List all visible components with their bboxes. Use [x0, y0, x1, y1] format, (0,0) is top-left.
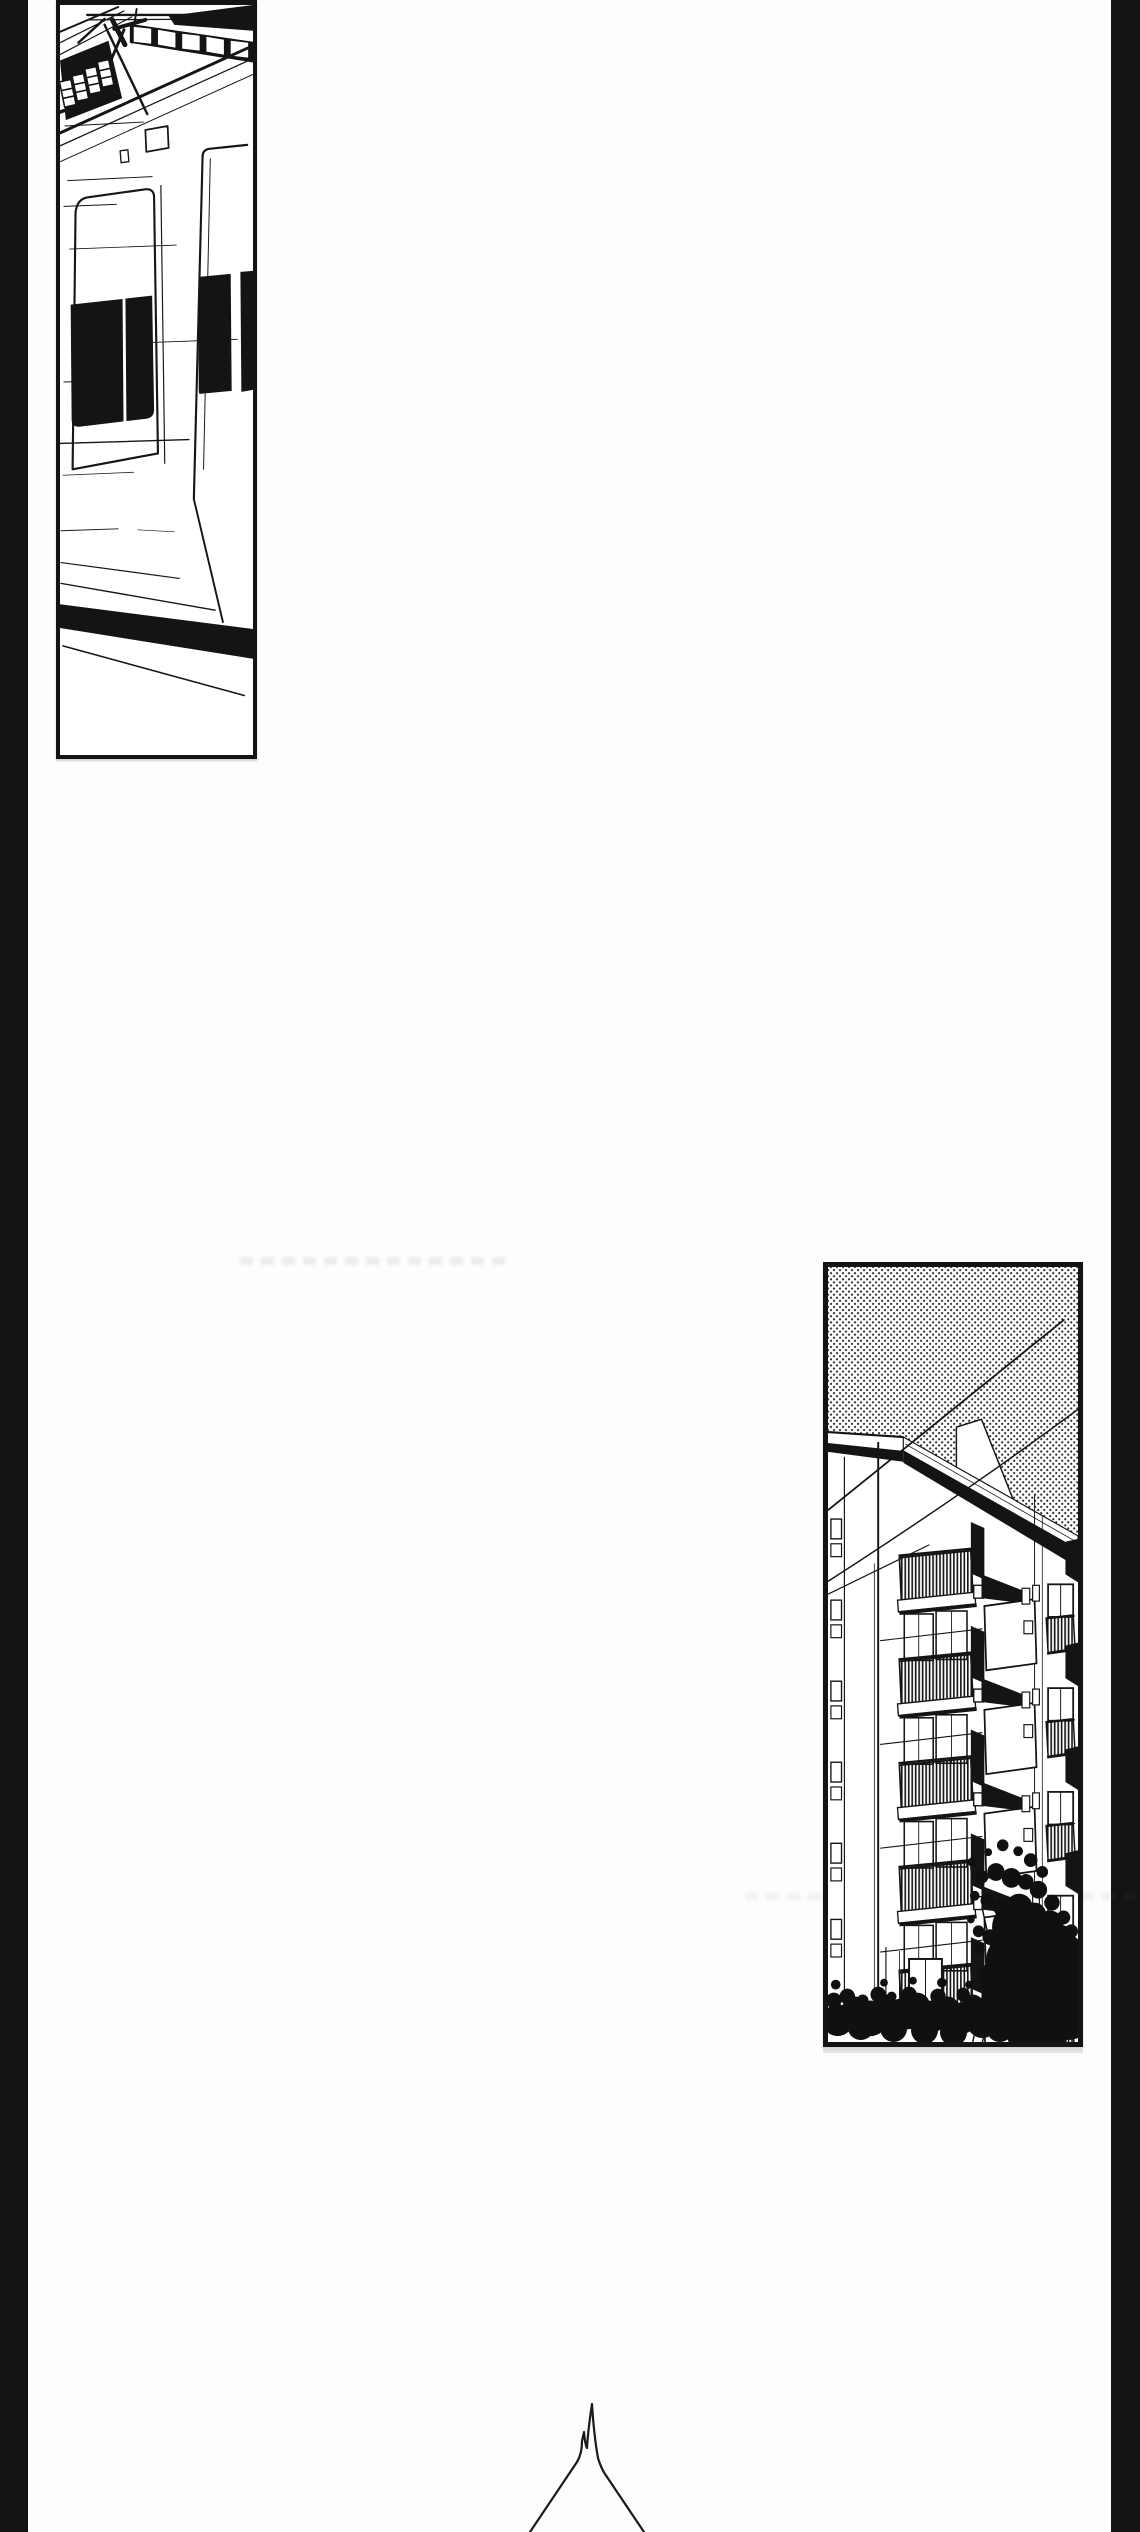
faint-smudge: [240, 1257, 508, 1265]
apartment-line-art: [828, 1267, 1078, 2042]
right-gutter-bar: [1111, 0, 1140, 2532]
faint-smudge: [823, 2049, 1083, 2053]
manga-page: [0, 0, 1140, 2532]
left-gutter-bar: [0, 0, 28, 2532]
train-line-art: [60, 5, 253, 755]
roof-peak-line-art: [510, 2396, 680, 2532]
panel-apartment-building: [823, 1262, 1083, 2047]
panel-train: [56, 0, 257, 759]
